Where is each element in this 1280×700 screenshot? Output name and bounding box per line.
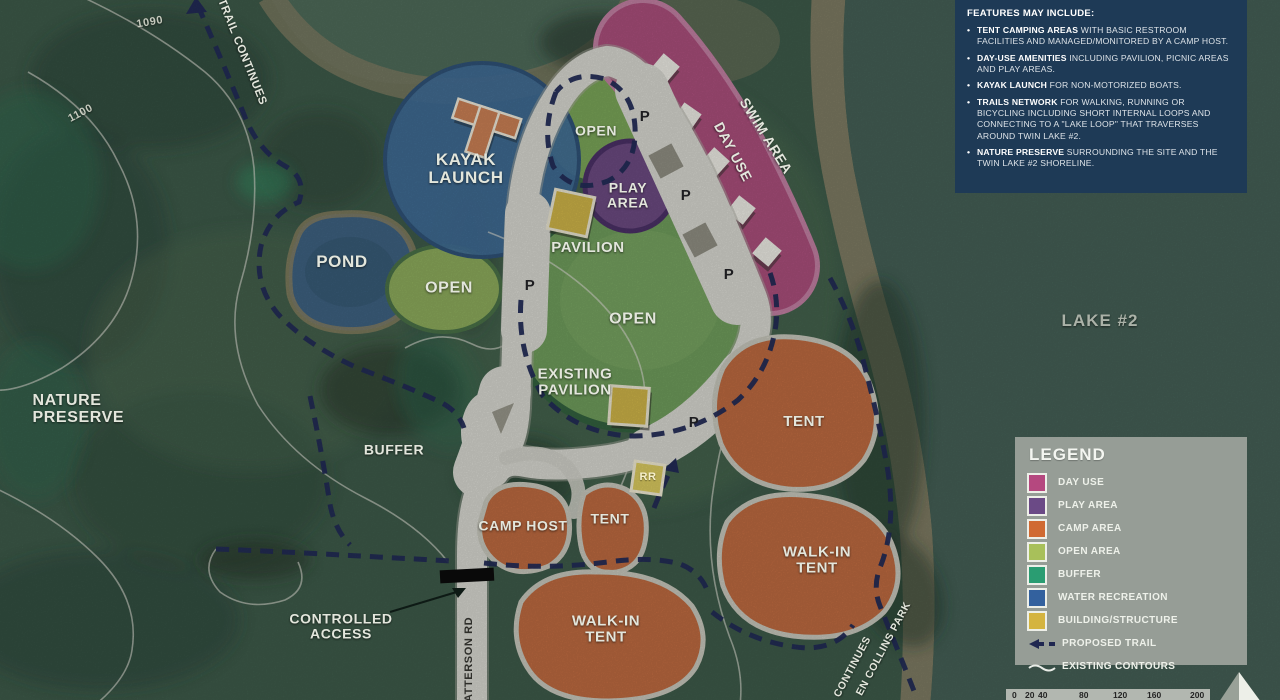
- nature-preserve-label: NATURE PRESERVE: [33, 393, 158, 427]
- bullet-icon: •: [967, 147, 977, 170]
- scale-tick: 200: [1190, 690, 1204, 700]
- legend-label: PLAY AREA: [1058, 500, 1118, 511]
- feature-item: • NATURE PRESERVE SURROUNDING THE SITE A…: [967, 147, 1235, 170]
- legend-swatch: [1027, 611, 1047, 631]
- legend-label: EXISTING CONTOURS: [1062, 661, 1175, 672]
- feature-item: • TRAILS NETWORK FOR WALKING, RUNNING OR…: [967, 97, 1235, 142]
- parking-label-2: P: [681, 188, 692, 204]
- feature-lead: DAY-USE AMENITIES: [977, 53, 1067, 63]
- pond-label: POND: [316, 253, 368, 271]
- restroom-label: RR: [639, 472, 656, 484]
- legend-label: PROPOSED TRAIL: [1062, 638, 1157, 649]
- feature-lead: NATURE PRESERVE: [977, 147, 1064, 157]
- legend-item-building-structure: BUILDING/STRUCTURE: [1027, 609, 1235, 632]
- scale-bar: 0 20 40 80 120 160 200: [1006, 689, 1210, 700]
- bullet-icon: •: [967, 80, 977, 91]
- parking-label-1: P: [640, 109, 651, 125]
- legend-swatch: [1027, 519, 1047, 539]
- tent-label-east: TENT: [783, 414, 825, 430]
- legend-title: LEGEND: [1029, 445, 1235, 465]
- play-area-label: PLAY AREA: [590, 180, 666, 209]
- dashed-arrow-icon: [1027, 637, 1057, 651]
- bullet-icon: •: [967, 53, 977, 76]
- feature-item: • TENT CAMPING AREAS WITH BASIC RESTROOM…: [967, 25, 1235, 48]
- patterson-rd-label: PATTERSON RD: [464, 617, 476, 700]
- legend-item-buffer: BUFFER: [1027, 563, 1235, 586]
- walk-in-tent-label-south: WALK-IN TENT: [551, 613, 661, 645]
- scale-tick: 0: [1012, 690, 1017, 700]
- open-label-north: OPEN: [575, 124, 617, 139]
- legend-label: OPEN AREA: [1058, 546, 1121, 557]
- parking-label-3: P: [724, 267, 735, 283]
- pavilion-label: PAVILION: [551, 240, 624, 256]
- legend-swatch: [1027, 473, 1047, 493]
- camp-host-label: CAMP HOST: [478, 519, 568, 534]
- scale-tick: 20: [1025, 690, 1034, 700]
- legend-item-play-area: PLAY AREA: [1027, 494, 1235, 517]
- legend-swatch: [1027, 588, 1047, 608]
- walk-in-tent-label-east: WALK-IN TENT: [762, 544, 872, 576]
- legend-label: WATER RECREATION: [1058, 592, 1168, 603]
- features-title: FEATURES MAY INCLUDE:: [967, 8, 1235, 19]
- legend-item-open-area: OPEN AREA: [1027, 540, 1235, 563]
- features-panel: FEATURES MAY INCLUDE: • TENT CAMPING ARE…: [955, 0, 1247, 193]
- site-plan-map: 1090 1100 TRAIL CONTINUES POND KAYAK LAU…: [0, 0, 1280, 700]
- feature-lead: KAYAK LAUNCH: [977, 80, 1047, 90]
- open-label-central: OPEN: [609, 312, 657, 329]
- legend-label: CAMP AREA: [1058, 523, 1122, 534]
- legend-item-proposed-trail: PROPOSED TRAIL: [1027, 632, 1235, 655]
- legend-item-water-recreation: WATER RECREATION: [1027, 586, 1235, 609]
- scale-tick: 120: [1113, 690, 1127, 700]
- feature-lead: TRAILS NETWORK: [977, 97, 1058, 107]
- bullet-icon: •: [967, 97, 977, 142]
- existing-pavilion-label: EXISTING PAVILION: [515, 366, 635, 398]
- legend-swatch: [1027, 496, 1047, 516]
- buffer-label: BUFFER: [364, 443, 424, 458]
- legend-item-camp-area: CAMP AREA: [1027, 517, 1235, 540]
- scale-tick: 160: [1147, 690, 1161, 700]
- parking-label-4: P: [525, 278, 536, 294]
- legend-label: DAY USE: [1058, 477, 1104, 488]
- open-label-west: OPEN: [425, 281, 473, 298]
- bullet-icon: •: [967, 25, 977, 48]
- legend-swatch: [1027, 565, 1047, 585]
- legend-label: BUILDING/STRUCTURE: [1058, 615, 1178, 626]
- legend-panel: LEGEND DAY USE PLAY AREA CAMP AREA OPEN …: [1015, 437, 1247, 665]
- feature-item: • KAYAK LAUNCH FOR NON-MOTORIZED BOATS.: [967, 80, 1235, 91]
- kayak-launch-label: KAYAK LAUNCH: [411, 151, 521, 187]
- scale-tick: 40: [1038, 690, 1047, 700]
- feature-item: • DAY-USE AMENITIES INCLUDING PAVILION, …: [967, 53, 1235, 76]
- parking-label-5: P: [689, 415, 700, 431]
- legend-item-day-use: DAY USE: [1027, 471, 1235, 494]
- tent-label-small: TENT: [591, 512, 630, 527]
- legend-swatch: [1027, 542, 1047, 562]
- scale-tick: 80: [1079, 690, 1088, 700]
- controlled-access-label: CONTROLLED ACCESS: [271, 611, 411, 640]
- feature-rest: FOR NON-MOTORIZED BOATS.: [1047, 80, 1182, 90]
- lake-2-label: LAKE #2: [1062, 312, 1139, 330]
- feature-lead: TENT CAMPING AREAS: [977, 25, 1078, 35]
- wavy-line-icon: [1027, 660, 1057, 674]
- legend-item-existing-contours: EXISTING CONTOURS: [1027, 655, 1235, 678]
- legend-label: BUFFER: [1058, 569, 1101, 580]
